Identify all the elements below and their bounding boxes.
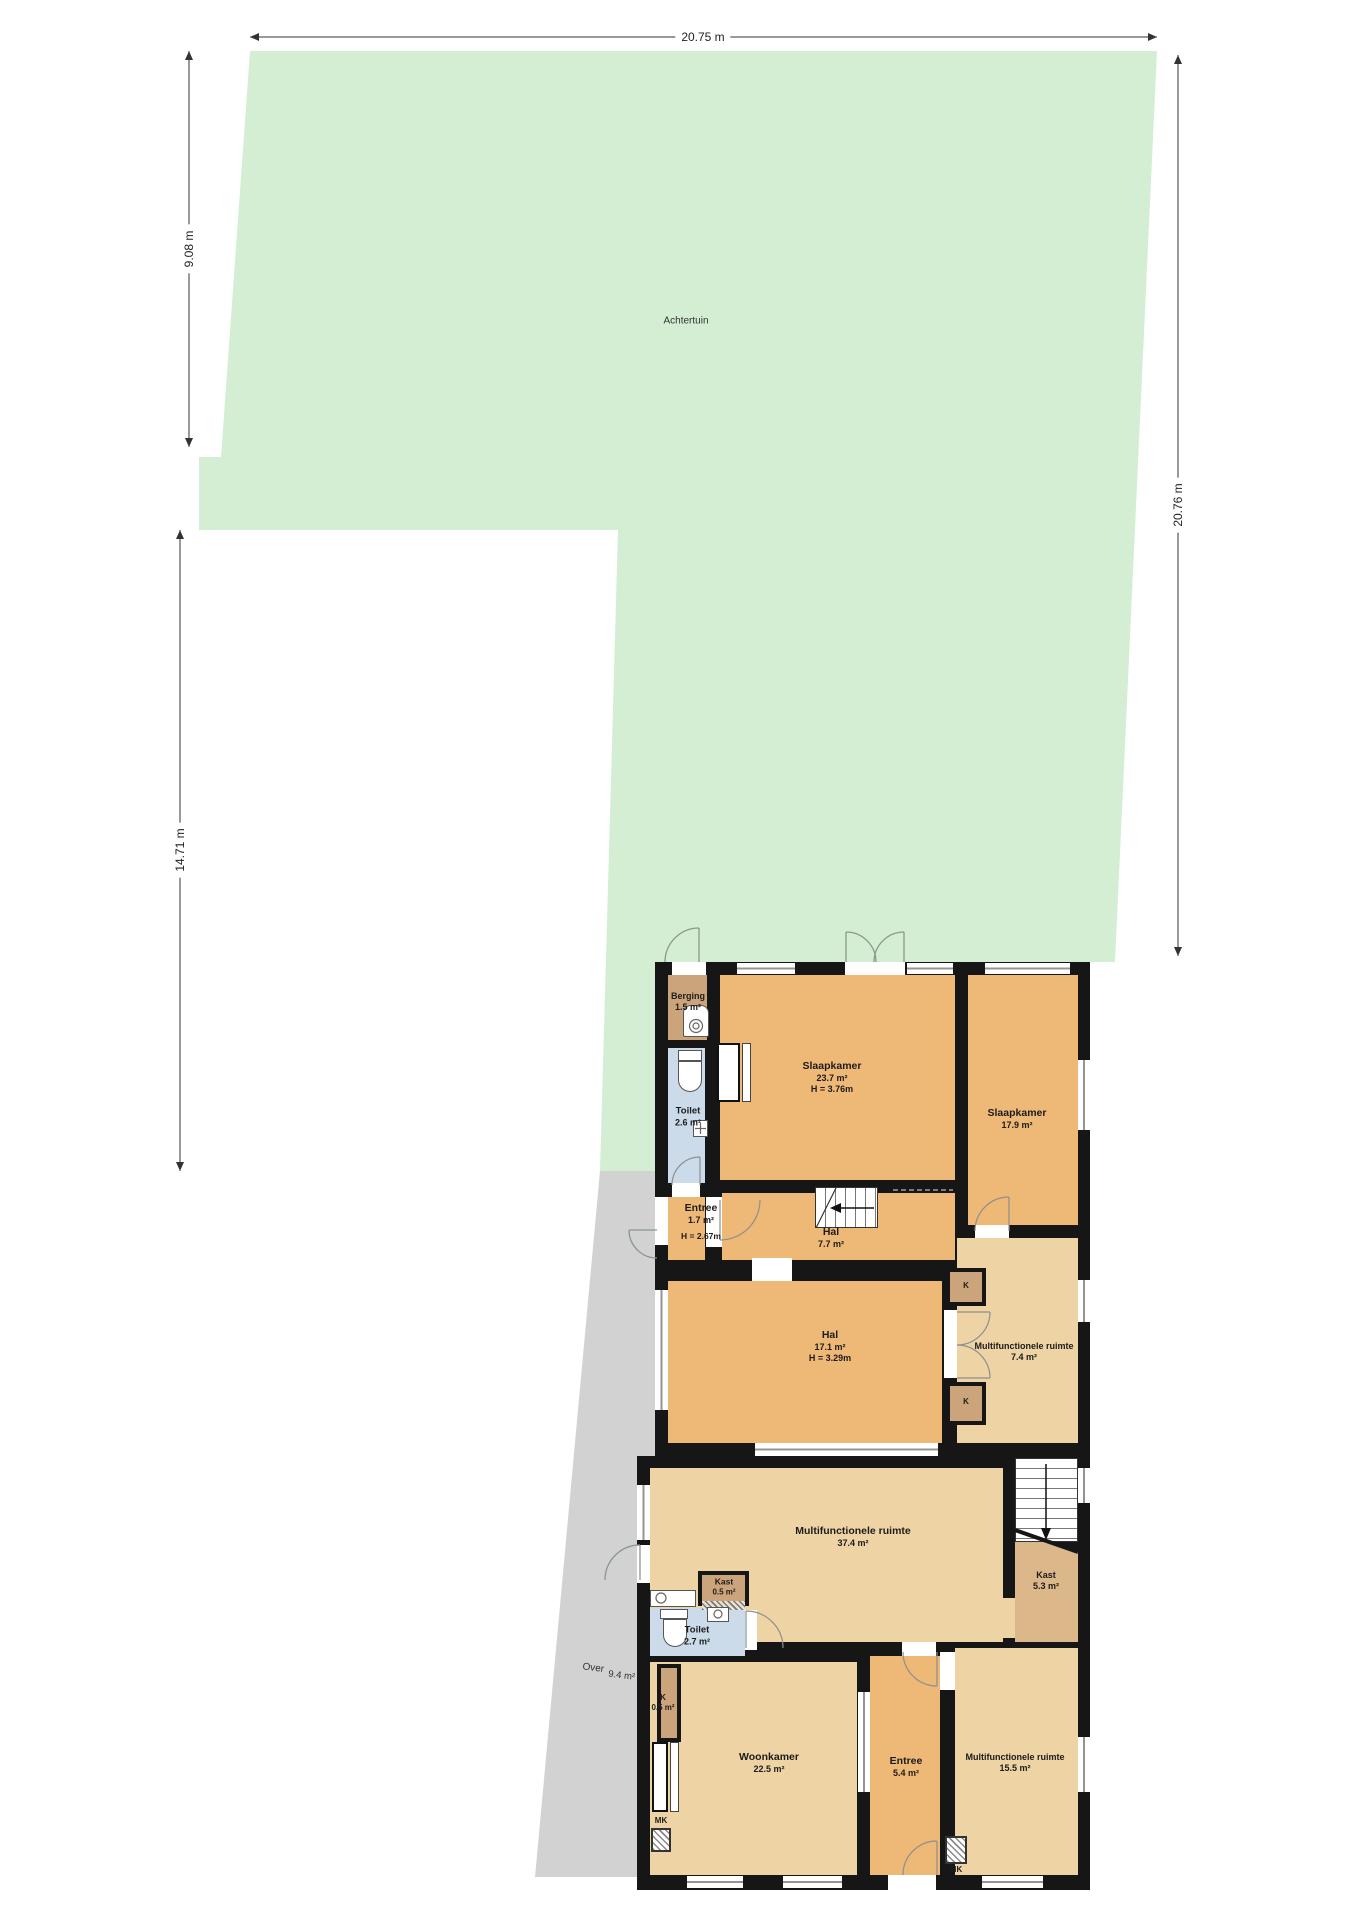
dimension-top: 20.75 m: [675, 29, 730, 45]
meter-label-mk1: MK: [655, 1816, 667, 1826]
shaft-beneden: [652, 1742, 668, 1812]
back-door-opening: [637, 1545, 650, 1583]
counter-beneden-icon: [650, 1590, 696, 1607]
entree-mf-voor-door-opening: [940, 1652, 955, 1690]
slaapkamer-klein-door-opening: [975, 1225, 1009, 1238]
window-slaapkamer-klein-top: [985, 963, 1070, 974]
room-hal-midden: [668, 1281, 942, 1443]
room-label-mf-klein: Multifunctionele ruimte 7.4 m²: [975, 1341, 1074, 1364]
staircase-down-icon: [1015, 1458, 1078, 1542]
room-label-berging: Berging 1.5 m²: [671, 991, 705, 1014]
window-entree-beneden-left: [858, 1692, 870, 1792]
window-mf-voor-bottom: [982, 1876, 1043, 1888]
garden-double-door-opening: [845, 962, 905, 975]
berging-garden-door-opening: [672, 962, 706, 975]
room-label-entree-beneden: Entree 5.4 m²: [890, 1755, 923, 1779]
mf-klein-double-door-opening: [944, 1310, 957, 1378]
meter-box-mk2-icon: [945, 1836, 967, 1864]
shaft-boven-band: [742, 1043, 751, 1102]
dimension-left-lower: 14.71 m: [172, 822, 188, 877]
room-label-kast-klein: Kast 0.5 m²: [712, 1577, 735, 1598]
room-label-kast-trap: Kast 5.3 m²: [1033, 1570, 1059, 1593]
toilet-beneden-door-opening: [745, 1610, 757, 1650]
window-woonkamer-bottom-2: [783, 1876, 842, 1888]
kast-trap-door-opening: [1003, 1598, 1015, 1638]
room-label-mf-groot: Multifunctionele ruimte 37.4 m²: [795, 1525, 911, 1549]
room-label-toilet-boven: Toilet 2.6 m²: [675, 1105, 701, 1128]
window-slaapkamer-klein-right: [1078, 1060, 1090, 1130]
entree-boven-front-door-opening: [655, 1197, 668, 1245]
floorplan-canvas: 20.75 m 9.08 m 14.71 m 20.76 m Achtertui…: [0, 0, 1358, 1920]
room-label-hal-midden: Hal 17.1 m² H = 3.29m: [809, 1329, 851, 1365]
entree-beneden-top-door-opening: [902, 1642, 936, 1656]
dimension-left-upper: 9.08 m: [181, 225, 197, 274]
window-mf-groot-left: [637, 1485, 650, 1540]
room-label-toilet-beneden: Toilet 2.7 m²: [684, 1624, 710, 1647]
over-name: Over: [582, 1661, 605, 1675]
front-door-opening: [888, 1875, 936, 1890]
toilet-boven-cistern-icon: [678, 1050, 702, 1061]
hal-boven-hal-midden-opening: [752, 1258, 792, 1281]
window-mf-klein-right: [1078, 1280, 1090, 1322]
room-label-mf-voor: Multifunctionele ruimte 15.5 m²: [966, 1752, 1065, 1775]
room-label-slaapkamer-groot: Slaapkamer 23.7 m² H = 3.76m: [803, 1060, 862, 1096]
over-area: 9.4 m²: [608, 1669, 636, 1683]
toilet-boven-bowl-icon: [678, 1061, 702, 1092]
window-slaapkamer-groot-2: [907, 963, 953, 974]
room-label-slaapkamer-klein: Slaapkamer 17.9 m²: [988, 1107, 1047, 1131]
sliding-door-hal-mf-groot: [755, 1443, 938, 1456]
over-label: Over 9.4 m²: [582, 1661, 634, 1678]
dimension-right: 20.76 m: [1170, 477, 1186, 532]
room-label-hal-boven: Hal 7.7 m²: [818, 1226, 844, 1250]
window-hal-midden-left: [655, 1290, 668, 1410]
room-label-entree-boven: Entree 1.7 m² H = 2.67m: [681, 1202, 721, 1242]
staircase-up-icon: [815, 1187, 878, 1228]
closet-label-k-woonkamer: K 0.5 m²: [651, 1693, 674, 1713]
sink-beneden-icon: [707, 1607, 729, 1622]
room-slaapkamer-klein: [968, 975, 1078, 1225]
shaft-beneden-band: [670, 1742, 679, 1812]
window-mf-voor-right: [1078, 1737, 1090, 1792]
toilet-boven-door-opening: [672, 1183, 700, 1197]
window-slaapkamer-groot-1: [737, 963, 795, 974]
window-woonkamer-bottom-1: [687, 1876, 743, 1888]
room-label-woonkamer: Woonkamer 22.5 m²: [739, 1751, 799, 1775]
closet-label-k1: K: [963, 1281, 969, 1291]
meter-box-mk1-icon: [651, 1828, 671, 1852]
window-stairs-right: [1078, 1468, 1090, 1503]
shaft-boven: [717, 1043, 740, 1102]
toilet-beneden-cistern-icon: [660, 1609, 688, 1619]
closet-label-k2: K: [963, 1397, 969, 1407]
meter-label-mk2: MK: [950, 1865, 962, 1875]
garden-label: Achtertuin: [663, 316, 708, 327]
